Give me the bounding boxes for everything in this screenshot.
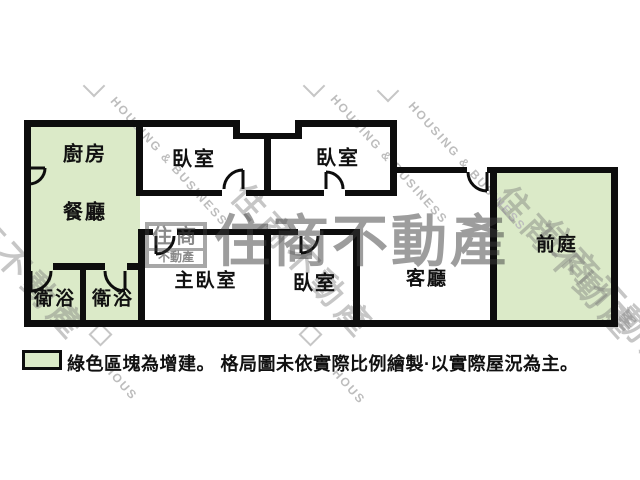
watermark-logo-mark <box>303 75 326 98</box>
room-label-bath2: 衛浴 <box>92 284 134 311</box>
legend-green-swatch <box>22 350 62 370</box>
room-label-bedroom1: 臥室 <box>172 143 216 172</box>
room-label-dining: 餐廳 <box>63 196 107 225</box>
room-label-bath1: 衛浴 <box>34 284 76 311</box>
wall-segment <box>24 320 618 327</box>
floorplan-canvas: HOUSING & BUSINESS HOUSING & BUSINESS HO… <box>0 0 640 480</box>
wall-segment <box>138 190 222 196</box>
legend-text: 綠色區塊為增建。 格局圖未依實際比例繪製·以實際屋況為主。 <box>67 350 579 376</box>
wall-segment <box>127 263 142 270</box>
wall-segment <box>24 120 240 127</box>
room-label-front-yard: 前庭 <box>536 230 578 257</box>
room-label-kitchen: 廚房 <box>63 138 107 167</box>
watermark-brand-text: 住商不動產 <box>214 214 509 270</box>
watermark-logo-bottom-text: 不動產 <box>149 248 203 264</box>
wall-segment <box>390 120 397 196</box>
wall-segment <box>390 167 467 173</box>
wall-segment <box>80 263 86 327</box>
watermark-logo-top-text: 住商 <box>149 226 203 248</box>
bedroom2-door-arc <box>326 172 343 189</box>
wall-segment <box>138 229 145 327</box>
watermark-logo-mark <box>377 80 400 103</box>
wall-segment <box>24 263 31 270</box>
wall-segment <box>264 133 271 196</box>
watermark-logo-mark <box>83 75 106 98</box>
wall-segment <box>295 120 397 127</box>
wall-segment <box>246 190 324 196</box>
wall-segment <box>53 263 105 270</box>
watermark-brand-logo: 住商 不動產 <box>145 222 207 268</box>
wall-segment <box>136 120 143 196</box>
wall-segment <box>24 120 31 327</box>
wall-segment <box>487 167 618 173</box>
room-label-bedroom2: 臥室 <box>316 142 360 171</box>
wall-segment <box>611 167 618 327</box>
wall-segment <box>345 190 397 196</box>
